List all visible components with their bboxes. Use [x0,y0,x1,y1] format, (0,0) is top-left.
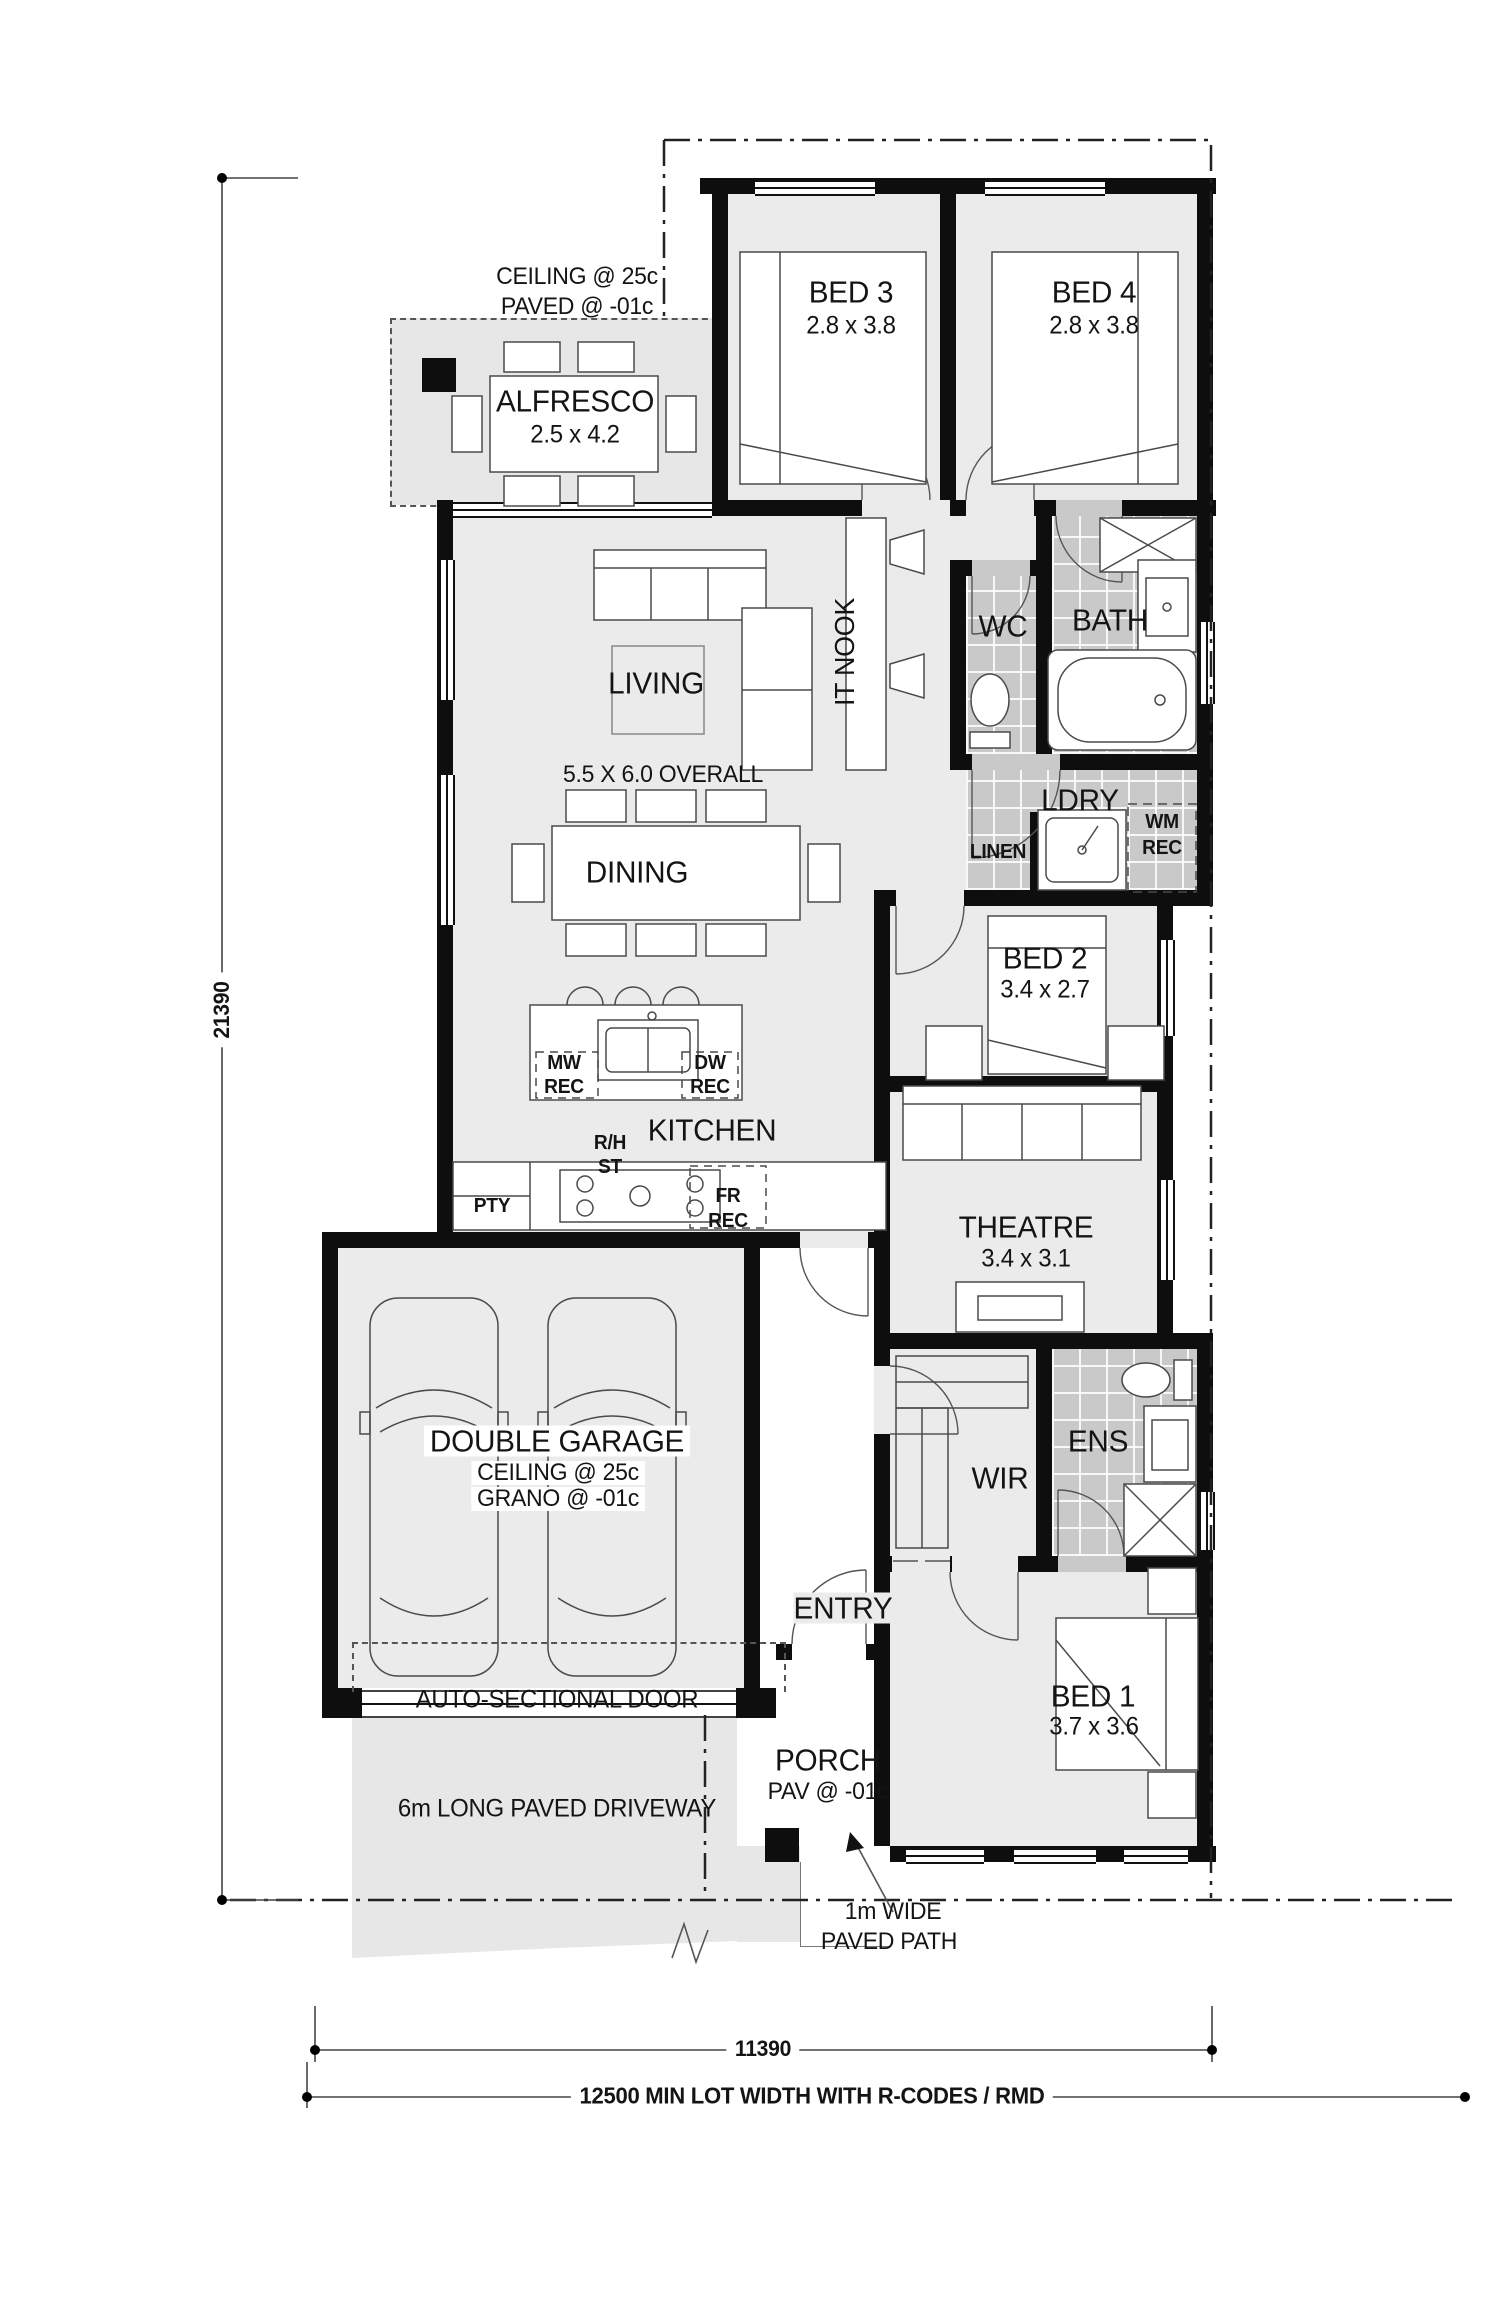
wall-theatre-bottom [874,1333,1173,1349]
alfresco-paved-note: PAVED @ -01c [501,295,653,319]
room-label-bed4: BED 4 [1052,277,1137,308]
path-note-line1: 1m WIDE [845,1900,942,1924]
wall-entry-left [744,1232,760,1700]
room-label-wir: WIR [972,1463,1029,1494]
room-label-kitchen: KITCHEN [648,1115,777,1146]
wall-spine-a [874,906,890,1076]
opening-theatre-door [874,1366,890,1434]
lot-inset-white [1173,906,1197,1333]
room-label-dining: DINING [586,857,688,888]
rangehood-line1: R/H [594,1133,626,1153]
pier-garage-right [736,1688,776,1718]
wall-garage-left [322,1248,338,1688]
stacker-door-alfresco [453,502,712,518]
room-label-bed3: BED 3 [809,277,894,308]
pier-garage-left [322,1688,362,1718]
dimension-depth: 21390 [211,973,233,1048]
window-theatre [1159,1180,1175,1280]
window-bath [1199,622,1215,704]
dimension-width: 11390 [726,2038,799,2060]
opening-wir-slider [892,1556,950,1572]
wall-right-lower [1197,1349,1213,1862]
pier-alfresco [422,358,456,392]
wm-rec-line2: REC [1142,838,1182,858]
wall-wir-ens-div [1036,1349,1052,1556]
path-arrowhead [846,1832,864,1852]
opening-bath-door [1056,500,1122,516]
alfresco-ceiling-note: CEILING @ 25c [496,265,658,289]
opening-bed3-door [862,500,950,516]
opening-wc-door [972,560,1030,576]
wall-bed34-divider [940,194,956,500]
driveway-label: 6m LONG PAVED DRIVEWAY [398,1797,716,1822]
window-bed1-c [1124,1848,1188,1864]
wall-right-upper [1197,194,1213,906]
path-note-line2: PAVED PATH [821,1930,957,1954]
garage-floor-note: GRANO @ -01c [471,1487,645,1511]
opening-bed1-door [952,1556,1018,1572]
fr-rec-line1: FR [715,1186,740,1206]
rangehood-line2: ST [598,1157,622,1177]
mw-rec-line2: REC [544,1077,584,1097]
window-living-a [439,560,455,700]
room-label-bed1: BED 1 [1051,1681,1136,1712]
tiles-wc [966,576,1036,754]
wall-wc-left [950,560,966,770]
room-label-bath: BATH [1072,605,1148,636]
opening-bed4-door [966,500,1034,516]
room-label-it-nook: IT NOOK [831,598,859,706]
wall-spine-c [874,1434,890,1572]
window-bed3 [755,180,875,196]
dw-rec-line1: DW [694,1053,725,1073]
window-bed2 [1159,940,1175,1036]
auto-door-label: AUTO-SECTIONAL DOOR [416,1688,699,1713]
wall-wc-bath-div [1036,516,1052,770]
room-label-entry: ENTRY [794,1593,893,1624]
dw-rec-line2: REC [690,1077,730,1097]
garage-ceiling-note: CEILING @ 25c [471,1461,644,1485]
window-bed1-a [906,1848,984,1864]
wall-bed3-left [712,194,728,516]
pantry-label: PTY [474,1196,510,1216]
room-dims-alfresco: 2.5 x 4.2 [530,423,619,448]
room-label-wc: WC [978,611,1027,642]
window-ens [1199,1492,1215,1550]
opening-front-door [792,1644,866,1660]
floor-driveway [352,1715,737,1958]
wall-linen-div [1030,812,1042,906]
fr-rec-line2: REC [708,1211,748,1231]
mw-rec-line1: MW [547,1053,581,1073]
floor-bedrooms-34 [728,194,1197,500]
room-dims-bed3: 2.8 x 3.8 [806,314,895,339]
room-dims-bed2: 3.4 x 2.7 [1000,978,1089,1003]
room-label-porch: PORCH [775,1745,881,1776]
opening-kitchen-entry [800,1232,868,1248]
dimension-lot-width: 12500 MIN LOT WIDTH WITH R-CODES / RMD [571,2085,1053,2108]
room-label-theatre: THEATRE [959,1212,1094,1243]
opening-ldry-door [972,754,1060,770]
room-label-ens: ENS [1068,1426,1128,1457]
room-dims-theatre: 3.4 x 3.1 [981,1247,1070,1272]
wall-spine-b [874,1092,890,1366]
room-label-linen: LINEN [970,842,1026,862]
wall-bed2-bottom [874,1076,1173,1092]
window-bed1-b [1014,1848,1096,1864]
room-label-bed2: BED 2 [1003,943,1088,974]
floor-plan-sheet: CEILING @ 25c PAVED @ -01c ALFRESCO 2.5 … [0,0,1501,2301]
opening-bed2-door [896,890,964,906]
wm-rec-line1: WM [1145,812,1179,832]
room-dims-bed4: 2.8 x 3.8 [1049,314,1138,339]
room-label-alfresco: ALFRESCO [496,386,654,417]
living-overall-dims: 5.5 X 6.0 OVERALL [563,763,763,787]
room-label-ldry: LDRY [1041,785,1119,816]
window-bed4 [985,180,1105,196]
room-dims-bed1: 3.7 x 3.6 [1049,1715,1138,1740]
porch-paving-note: PAV @ -01c [768,1780,889,1804]
wall-beds34-bottom [712,500,1216,516]
pier-porch [765,1828,799,1862]
room-label-living: LIVING [608,668,704,699]
window-living-b [439,775,455,925]
garage-door-clearance [352,1642,786,1692]
room-label-garage: DOUBLE GARAGE [424,1426,690,1457]
opening-ens-door [1058,1556,1126,1572]
